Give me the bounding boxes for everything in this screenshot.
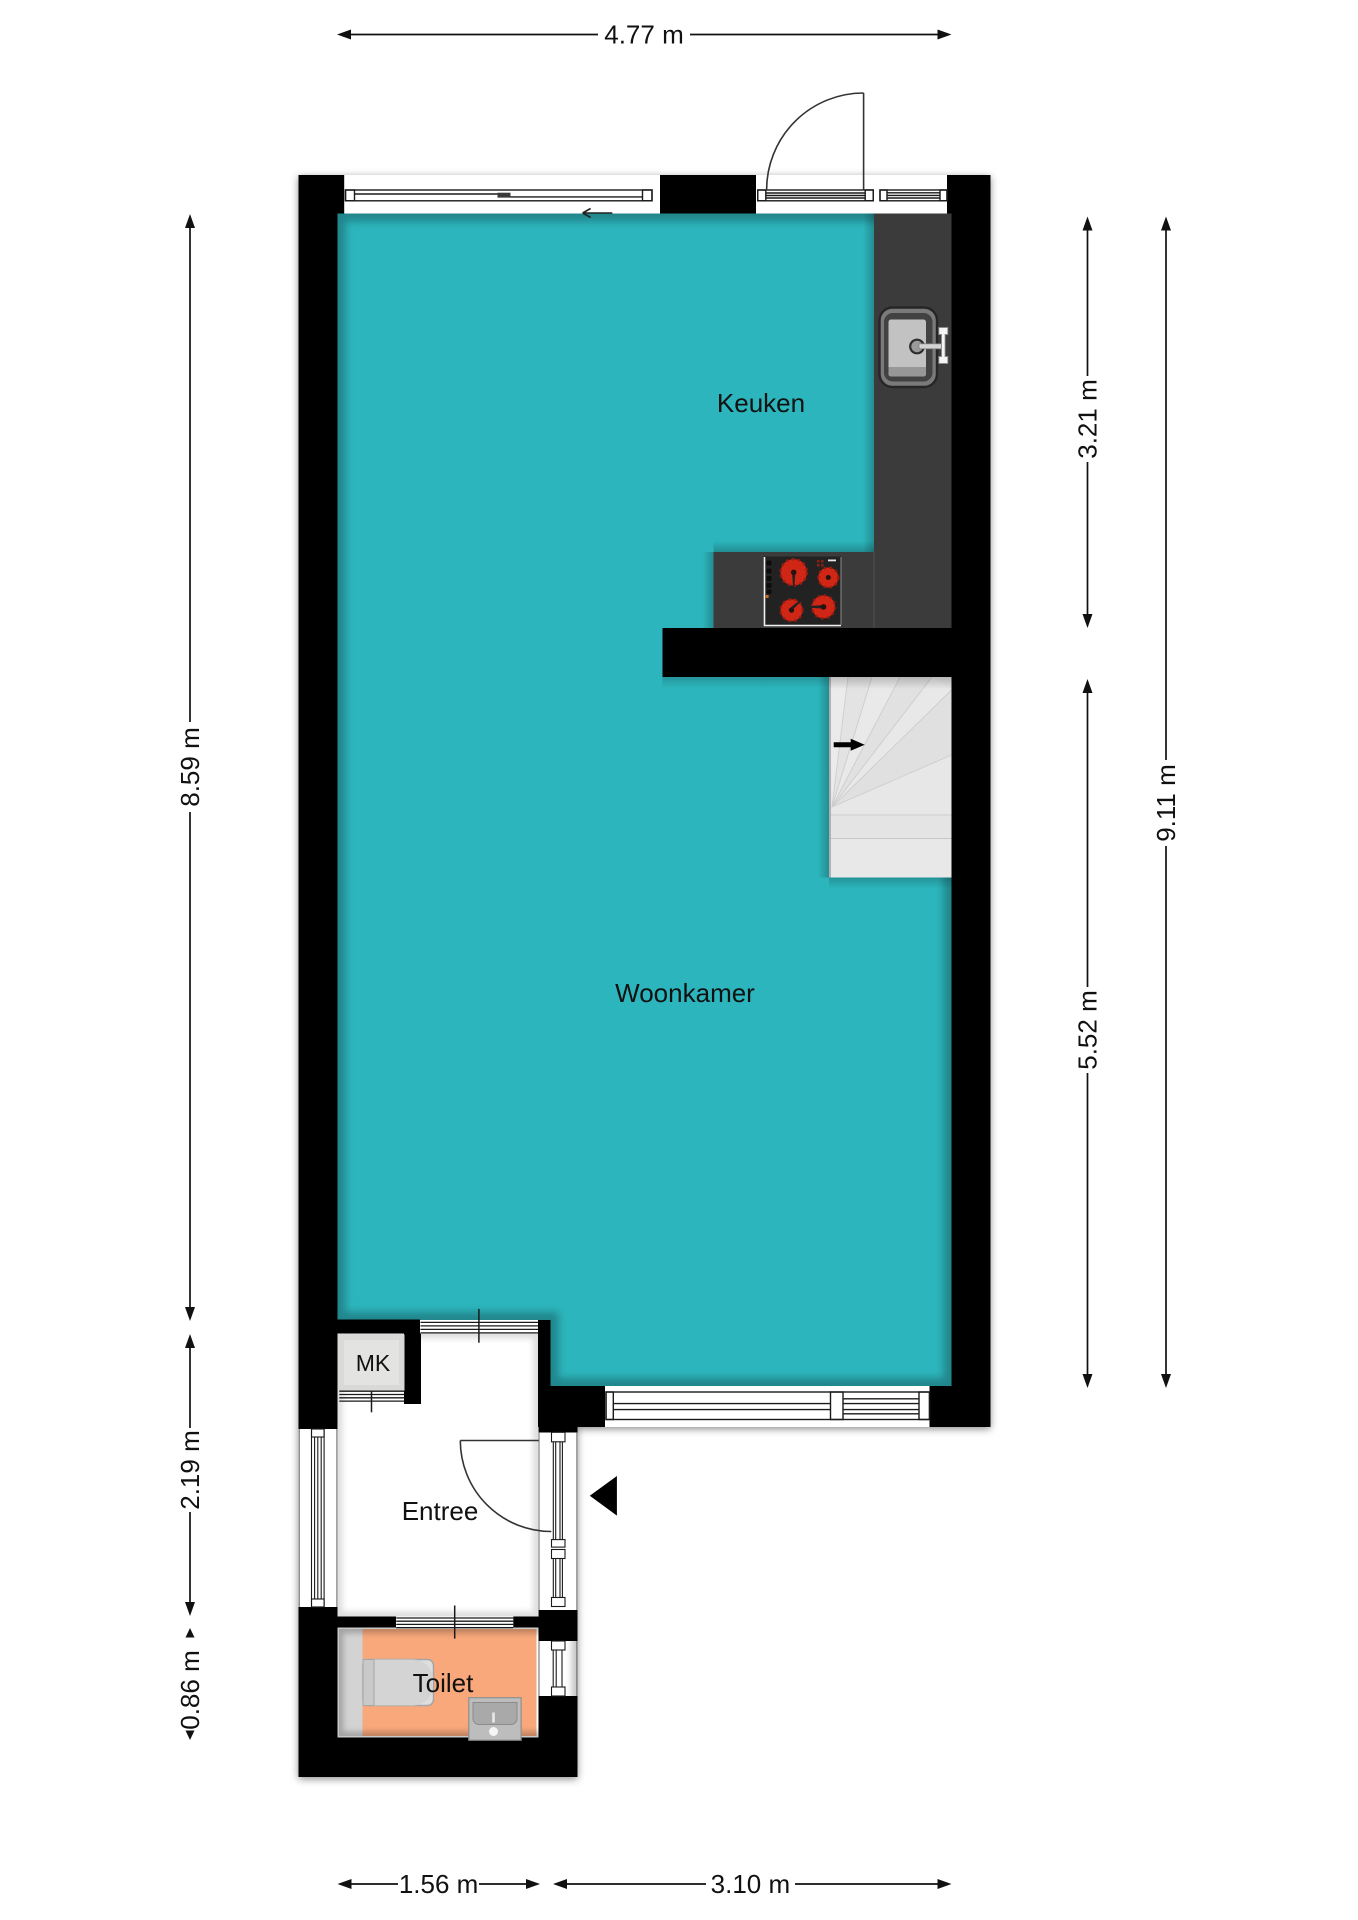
svg-text:Entree: Entree [402,1496,479,1526]
svg-text:1.56 m: 1.56 m [399,1869,479,1899]
svg-text:Woonkamer: Woonkamer [615,978,755,1008]
svg-text:0.86 m: 0.86 m [175,1650,205,1730]
svg-text:3.10 m: 3.10 m [711,1869,791,1899]
svg-text:4.77 m: 4.77 m [604,20,684,50]
svg-text:Toilet: Toilet [413,1668,474,1698]
svg-text:2.19 m: 2.19 m [175,1430,205,1510]
svg-text:5.52 m: 5.52 m [1073,990,1103,1070]
svg-text:MK: MK [356,1350,391,1376]
svg-text:8.59 m: 8.59 m [175,727,205,807]
svg-text:9.11 m: 9.11 m [1151,764,1181,842]
svg-text:3.21 m: 3.21 m [1073,379,1103,459]
svg-text:Keuken: Keuken [717,388,805,418]
